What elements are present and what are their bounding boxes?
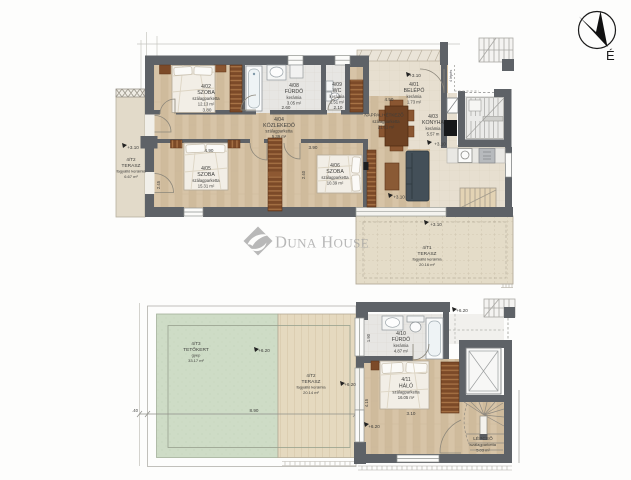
svg-text:2.40: 2.40 <box>301 170 306 179</box>
svg-text:szálagparketta: szálagparketta <box>372 119 400 124</box>
svg-text:kerámia: kerámia <box>330 94 346 99</box>
svg-text:FÜRDŐ: FÜRDŐ <box>392 336 410 343</box>
svg-text:1.51 m²: 1.51 m² <box>330 100 345 105</box>
svg-text:33.17 m²: 33.17 m² <box>188 358 204 363</box>
svg-text:5.39 m²: 5.39 m² <box>272 134 287 139</box>
svg-text:+6.20: +6.20 <box>368 424 380 429</box>
svg-text:szálagparketta: szálagparketta <box>192 96 220 101</box>
svg-text:4/T1: 4/T1 <box>422 245 432 250</box>
svg-text:BELÉPŐ: BELÉPŐ <box>404 87 425 94</box>
svg-text:4/T2: 4/T2 <box>306 373 316 378</box>
svg-text:6.67 m²: 6.67 m² <box>124 174 138 179</box>
svg-text:LÉPCSŐ: LÉPCSŐ <box>473 435 493 442</box>
svg-text:szálagparketta: szálagparketta <box>192 178 220 183</box>
svg-text:8.90: 8.90 <box>250 408 259 413</box>
svg-text:4.87 m²: 4.87 m² <box>394 349 409 354</box>
svg-text:fagyálló kerámia: fagyálló kerámia <box>296 385 326 390</box>
svg-text:3.90: 3.90 <box>309 145 318 150</box>
svg-text:15.31 m²: 15.31 m² <box>198 184 215 189</box>
svg-text:4/T3: 4/T3 <box>191 341 201 346</box>
svg-text:+6.20: +6.20 <box>258 348 270 353</box>
svg-text:2.60: 2.60 <box>282 105 291 110</box>
svg-text:.40: .40 <box>132 408 138 413</box>
svg-text:4.90: 4.90 <box>205 148 214 153</box>
svg-text:16.05 m²: 16.05 m² <box>398 395 415 400</box>
svg-text:szálagparketta: szálagparketta <box>392 390 420 395</box>
svg-text:fagyálló kerámia: fagyálló kerámia <box>412 257 442 262</box>
svg-text:4.15: 4.15 <box>364 398 369 407</box>
svg-text:+6.20: +6.20 <box>344 382 356 387</box>
svg-text:+6.20: +6.20 <box>456 308 468 313</box>
svg-text:kerámia: kerámia <box>394 343 410 348</box>
svg-text:1.73 m²: 1.73 m² <box>407 100 422 105</box>
svg-text:3.80: 3.80 <box>203 108 212 113</box>
svg-text:FÜRDŐ: FÜRDŐ <box>285 88 303 95</box>
svg-text:É: É <box>606 48 615 63</box>
svg-text:HÁLÓ: HÁLÓ <box>399 383 413 390</box>
svg-text:+3.10: +3.10 <box>393 195 405 200</box>
svg-text:szálagparketta: szálagparketta <box>265 129 293 134</box>
svg-text:2.45: 2.45 <box>156 180 161 189</box>
svg-text:5.57 m: 5.57 m <box>427 132 440 137</box>
svg-text:NAPPALI+ÉTKEZŐ: NAPPALI+ÉTKEZŐ <box>364 112 404 118</box>
svg-text:kerámia: kerámia <box>407 94 423 99</box>
svg-text:20.14 m²: 20.14 m² <box>303 390 319 395</box>
svg-text:10.39 m²: 10.39 m² <box>327 181 344 186</box>
svg-text:fagyálló kerámia: fagyálló kerámia <box>116 169 146 174</box>
svg-text:12.13 m²: 12.13 m² <box>198 102 215 107</box>
svg-text:21.01 m²: 21.01 m² <box>378 125 395 130</box>
svg-text:gyep: gyep <box>192 353 201 358</box>
svg-text:3.10: 3.10 <box>407 411 416 416</box>
svg-text:4/11: 4/11 <box>401 377 411 383</box>
svg-text:kerámia: kerámia <box>426 126 442 131</box>
svg-text:1.90: 1.90 <box>366 333 371 342</box>
svg-text:5.03 m²: 5.03 m² <box>476 448 490 453</box>
svg-text:4 lépés: 4 lépés <box>449 70 453 82</box>
svg-text:+3.10: +3.10 <box>434 142 446 147</box>
svg-text:20.16 m²: 20.16 m² <box>419 262 435 267</box>
svg-text:szálagparketta: szálagparketta <box>470 442 497 447</box>
svg-text:+3.10: +3.10 <box>409 73 421 78</box>
svg-text:kerámia: kerámia <box>287 95 303 100</box>
svg-text:DUNA HOUSE: DUNA HOUSE <box>275 233 369 252</box>
svg-text:+3.10: +3.10 <box>430 222 442 227</box>
svg-text:4.50: 4.50 <box>385 97 394 102</box>
svg-text:+3.10: +3.10 <box>127 145 139 150</box>
svg-text:szálagparketta: szálagparketta <box>321 175 349 180</box>
svg-text:2.10: 2.10 <box>334 105 343 110</box>
svg-text:4/T2: 4/T2 <box>126 157 136 162</box>
